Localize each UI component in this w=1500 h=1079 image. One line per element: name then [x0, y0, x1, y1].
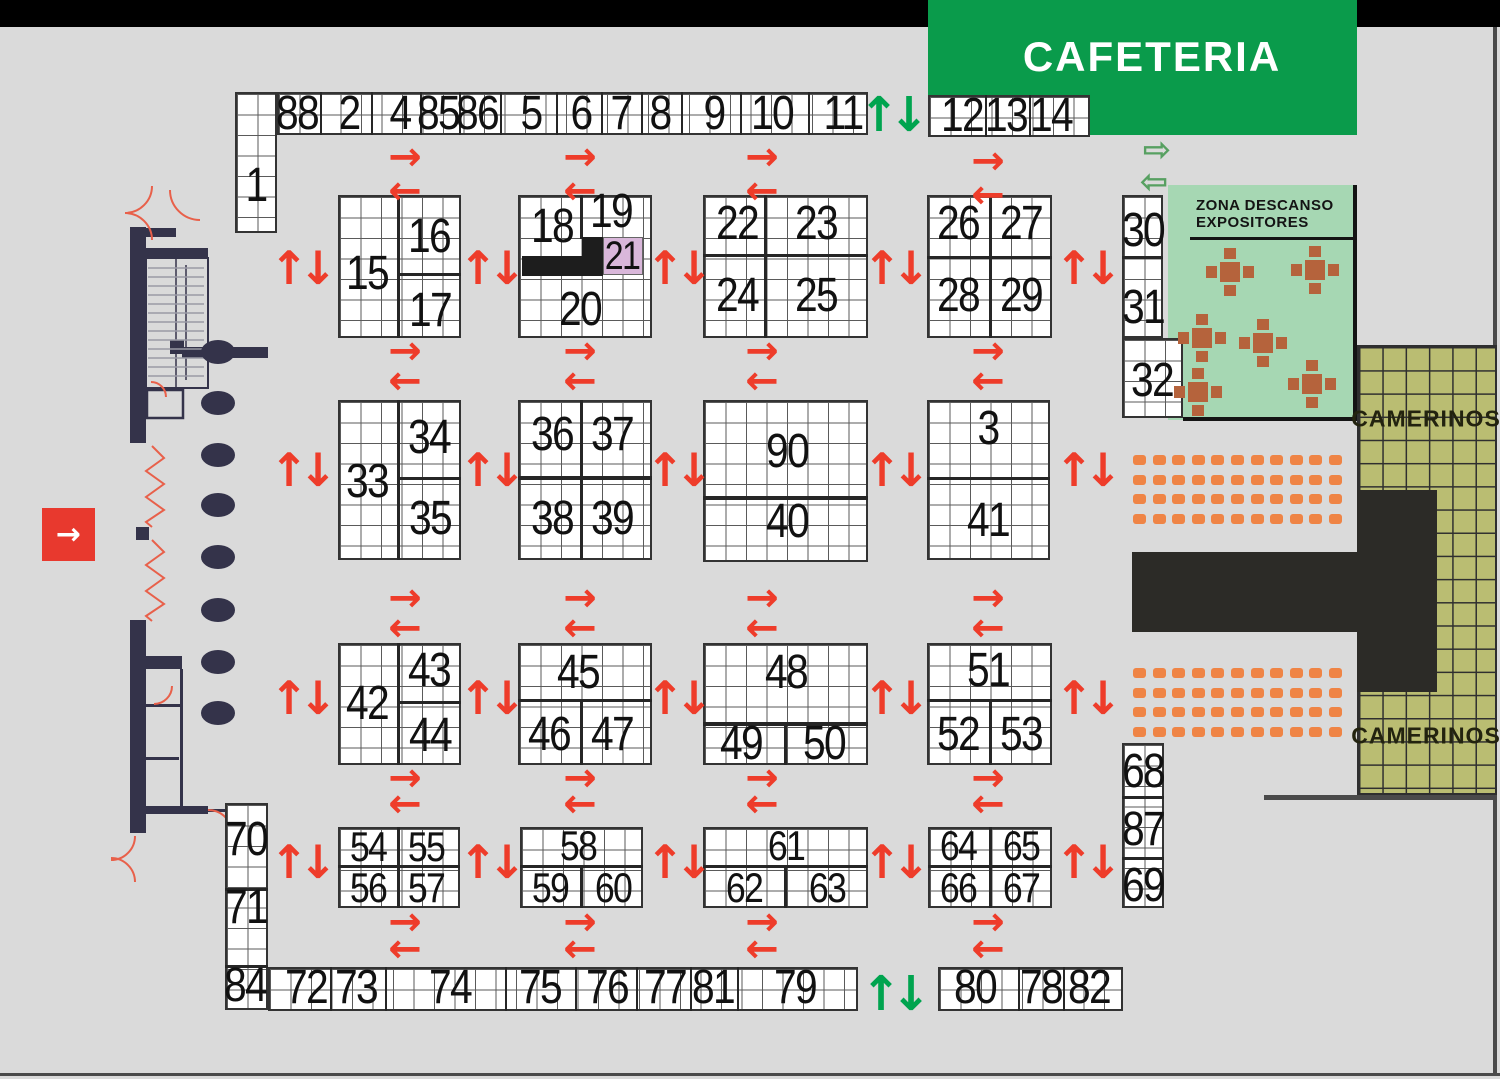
seat-dot [1211, 514, 1224, 524]
booth-28[interactable]: 28 [937, 272, 979, 320]
booth-45[interactable]: 45 [557, 649, 599, 697]
seat-dot [1290, 727, 1303, 737]
red-down-arrow-icon: ↓ [299, 675, 338, 721]
seat-dot [1172, 727, 1185, 737]
booth-84[interactable]: 84 [224, 962, 266, 1010]
booth-15[interactable]: 15 [346, 250, 388, 298]
booth-divider [397, 477, 461, 480]
green-down-arrow-icon: ↓ [891, 970, 931, 1018]
seat-dot [1309, 707, 1322, 717]
booth-divider [371, 92, 373, 135]
column-oval [201, 650, 235, 674]
seat-dot [1192, 707, 1205, 717]
seat-dot [1133, 668, 1146, 678]
booth-86[interactable]: 86 [456, 90, 498, 138]
booth-divider [397, 195, 400, 338]
seat-dot [1251, 688, 1264, 698]
booth-divider [556, 92, 558, 135]
camerinos-label-top: CAMERINOS [1351, 406, 1500, 433]
booth-24[interactable]: 24 [716, 272, 758, 320]
seat-dot [1211, 707, 1224, 717]
booth-75[interactable]: 75 [519, 964, 561, 1012]
seat-dot [1329, 727, 1342, 737]
red-left-arrow-icon: ← [388, 361, 422, 401]
seat-dot [1329, 668, 1342, 678]
red-left-arrow-icon: ← [745, 784, 779, 824]
booth-68[interactable]: 68 [1122, 748, 1164, 796]
seat-dot [1172, 688, 1185, 698]
seat-dot [1133, 475, 1146, 485]
booth-47[interactable]: 47 [591, 711, 633, 759]
booth-9[interactable]: 9 [704, 90, 725, 138]
seat-dot [1133, 514, 1146, 524]
booth-divider [397, 400, 400, 560]
green-down-arrow-icon: ↓ [889, 91, 929, 139]
seat-dot [1231, 494, 1244, 504]
booth-43[interactable]: 43 [408, 647, 450, 695]
table-icon [1178, 314, 1226, 362]
seat-dot [1251, 727, 1264, 737]
red-down-arrow-icon: ↓ [299, 447, 338, 493]
seat-dot [1329, 455, 1342, 465]
booth-41[interactable]: 41 [967, 497, 1009, 545]
red-down-arrow-icon: ↓ [892, 675, 931, 721]
column-oval [201, 493, 235, 517]
seat-dot [1309, 494, 1322, 504]
booth-37[interactable]: 37 [591, 411, 633, 459]
seat-dot [1290, 668, 1303, 678]
seat-dot [1211, 727, 1224, 737]
booth-52[interactable]: 52 [937, 711, 979, 759]
booth-65[interactable]: 65 [1003, 825, 1039, 867]
table-icon [1288, 360, 1336, 408]
booth-divider [397, 273, 461, 276]
seat-dot [1211, 455, 1224, 465]
booth-divider [808, 92, 810, 135]
seat-dot [1270, 707, 1283, 717]
booth-3[interactable]: 3 [978, 405, 999, 453]
seat-dot [1309, 688, 1322, 698]
booth-divider [518, 476, 652, 480]
booth-71[interactable]: 71 [225, 884, 267, 932]
door-arc-icon [111, 186, 232, 882]
seat-dot [1290, 494, 1303, 504]
seat-dot [1172, 514, 1185, 524]
seat-dot [1329, 494, 1342, 504]
booth-67[interactable]: 67 [1003, 867, 1039, 909]
column-oval [201, 701, 235, 725]
booth-87[interactable]: 87 [1122, 806, 1164, 854]
booth-35[interactable]: 35 [409, 495, 451, 543]
seat-dot [1153, 494, 1166, 504]
seat-dot [1211, 494, 1224, 504]
booth-63[interactable]: 63 [809, 867, 845, 909]
booth-42[interactable]: 42 [346, 680, 388, 728]
booth-60[interactable]: 60 [595, 867, 631, 909]
rest-zone-underline [1190, 237, 1357, 240]
booth-79[interactable]: 79 [774, 964, 816, 1012]
seat-dot [1211, 668, 1224, 678]
red-down-arrow-icon: ↓ [675, 839, 714, 885]
booth-78[interactable]: 78 [1020, 964, 1062, 1012]
red-left-arrow-icon: ← [563, 361, 597, 401]
booth-divider [1063, 967, 1065, 1011]
booth-85[interactable]: 85 [417, 90, 459, 138]
seat-dot [1133, 727, 1146, 737]
seat-dot [1153, 455, 1166, 465]
seat-dot [1329, 688, 1342, 698]
red-left-arrow-icon: ← [745, 171, 779, 211]
seat-dot [1251, 514, 1264, 524]
seat-dot [1270, 494, 1283, 504]
red-left-arrow-icon: ← [563, 171, 597, 211]
seat-dot [1153, 475, 1166, 485]
red-left-arrow-icon: ← [745, 608, 779, 648]
seat-dot [1270, 668, 1283, 678]
seat-dot [1309, 668, 1322, 678]
red-left-arrow-icon: ← [971, 929, 1005, 969]
seat-dot [1251, 494, 1264, 504]
booth-divider [397, 643, 400, 765]
red-left-arrow-icon: ← [971, 175, 1005, 215]
booth-21[interactable]: 21 [605, 236, 639, 276]
booth-44[interactable]: 44 [409, 712, 451, 760]
booth-divider [601, 92, 603, 135]
booth-23[interactable]: 23 [795, 200, 837, 248]
booth-64[interactable]: 64 [940, 825, 976, 867]
booth-31[interactable]: 31 [1122, 284, 1164, 332]
red-down-arrow-icon: ↓ [1084, 447, 1123, 493]
red-left-arrow-icon: ← [563, 608, 597, 648]
booth-divider [784, 865, 787, 908]
left-architecture [0, 0, 340, 1079]
booth-33[interactable]: 33 [346, 458, 388, 506]
column-oval [201, 443, 235, 467]
red-down-arrow-icon: ↓ [488, 447, 527, 493]
seat-dot [1270, 455, 1283, 465]
booth-48[interactable]: 48 [765, 649, 807, 697]
rest-zone-label: ZONA DESCANSO EXPOSITORES [1196, 197, 1334, 231]
booth-56[interactable]: 56 [350, 867, 386, 909]
booth-divider [500, 92, 502, 135]
seat-dot [1192, 668, 1205, 678]
seat-dot [1329, 707, 1342, 717]
booth-divider [764, 195, 767, 338]
red-down-arrow-icon: ↓ [675, 675, 714, 721]
table-icon [1206, 248, 1254, 296]
booth-divider [784, 722, 787, 765]
seat-dot [1251, 455, 1264, 465]
seat-dot [1270, 475, 1283, 485]
rest-zone-bottom-line [1183, 417, 1357, 421]
seat-dot [1290, 475, 1303, 485]
rest-zone-line2: EXPOSITORES [1196, 214, 1334, 231]
seat-dot [1192, 494, 1205, 504]
booth-61[interactable]: 61 [768, 825, 804, 867]
seat-dot [1290, 455, 1303, 465]
seat-dot [1153, 668, 1166, 678]
stage-back [1357, 490, 1437, 692]
seat-dot [1309, 455, 1322, 465]
expo-floor-plan: CAFETERIA ZONA DESCANSO EXPOSITORES CAME… [0, 0, 1500, 1079]
column-oval [201, 545, 235, 569]
booth-divider [740, 92, 742, 135]
booth-11[interactable]: 11 [824, 90, 863, 138]
booth-50[interactable]: 50 [803, 720, 845, 768]
table-icon [1291, 246, 1339, 294]
seat-dot [1329, 514, 1342, 524]
red-left-arrow-icon: ← [745, 929, 779, 969]
seat-dot [1251, 668, 1264, 678]
seat-dot [1270, 688, 1283, 698]
seat-dot [1153, 707, 1166, 717]
seat-dot [1133, 455, 1146, 465]
red-down-arrow-icon: ↓ [299, 245, 338, 291]
red-down-arrow-icon: ↓ [488, 675, 527, 721]
red-left-arrow-icon: ← [745, 361, 779, 401]
booth-30[interactable]: 30 [1122, 207, 1164, 255]
red-down-arrow-icon: ↓ [488, 245, 527, 291]
red-left-arrow-icon: ← [388, 171, 422, 211]
column-oval [201, 598, 235, 622]
booth-69[interactable]: 69 [1122, 862, 1164, 910]
seat-dot [1329, 475, 1342, 485]
seat-dot [1133, 494, 1146, 504]
booth-36[interactable]: 36 [531, 411, 573, 459]
seat-dot [1172, 455, 1185, 465]
red-left-arrow-icon: ← [563, 929, 597, 969]
booth-2[interactable]: 2 [339, 90, 360, 138]
seat-dot [1211, 688, 1224, 698]
booth-58[interactable]: 58 [560, 825, 596, 867]
booth-8[interactable]: 8 [650, 90, 671, 138]
column-oval [201, 340, 235, 364]
seat-dot [1192, 514, 1205, 524]
seat-dot [1192, 455, 1205, 465]
red-down-arrow-icon: ↓ [675, 447, 714, 493]
seat-dot [1153, 688, 1166, 698]
booth-34[interactable]: 34 [408, 414, 450, 462]
booth-39[interactable]: 39 [591, 495, 633, 543]
seat-dot [1231, 475, 1244, 485]
red-down-arrow-icon: ↓ [1084, 675, 1123, 721]
seat-dot [1172, 668, 1185, 678]
wall-segments [130, 227, 268, 833]
red-down-arrow-icon: ↓ [1084, 839, 1123, 885]
booth-82[interactable]: 82 [1068, 964, 1110, 1012]
seat-dot [1231, 455, 1244, 465]
booth-81[interactable]: 81 [692, 964, 734, 1012]
booth-88[interactable]: 88 [276, 90, 318, 138]
booth-divider [580, 400, 583, 560]
seat-dot [1309, 514, 1322, 524]
booth-divider [385, 967, 387, 1011]
red-down-arrow-icon: ↓ [892, 839, 931, 885]
booth-32[interactable]: 32 [1131, 357, 1173, 405]
seat-dot [1231, 514, 1244, 524]
seat-dot [1133, 707, 1146, 717]
red-down-arrow-icon: ↓ [299, 839, 338, 885]
booth-divider [518, 699, 652, 702]
red-down-arrow-icon: ↓ [488, 839, 527, 885]
seat-dot [1153, 514, 1166, 524]
booth-7[interactable]: 7 [611, 90, 632, 138]
booth-12[interactable]: 12 [941, 92, 983, 140]
booth-divider [927, 256, 1052, 259]
booth-divider [681, 92, 683, 135]
booth-divider [505, 967, 507, 1011]
booth-73[interactable]: 73 [335, 964, 377, 1012]
seat-dot [1231, 727, 1244, 737]
booth-38[interactable]: 38 [531, 495, 573, 543]
seat-dot [1251, 475, 1264, 485]
cafeteria-label: CAFETERIA [1023, 33, 1281, 81]
red-left-arrow-icon: ← [971, 784, 1005, 824]
seat-dot [1133, 688, 1146, 698]
booth-divider [703, 254, 868, 257]
seat-dot [1251, 707, 1264, 717]
booth-54[interactable]: 54 [350, 826, 386, 868]
booth-46[interactable]: 46 [528, 711, 570, 759]
blocked-cells [522, 256, 603, 276]
booth-51[interactable]: 51 [967, 647, 1009, 695]
booth-14[interactable]: 14 [1030, 92, 1072, 140]
booth-divider [397, 701, 461, 704]
booth-divider [636, 967, 638, 1011]
table-icon [1174, 368, 1222, 416]
booth-divider [641, 92, 643, 135]
booth-72[interactable]: 72 [285, 964, 327, 1012]
stage-area [1132, 552, 1357, 632]
booth-divider [575, 967, 577, 1011]
booth-40[interactable]: 40 [766, 498, 808, 546]
seat-dot [1309, 727, 1322, 737]
seat-dot [1231, 707, 1244, 717]
red-down-arrow-icon: ↓ [675, 245, 714, 291]
booth-4[interactable]: 4 [390, 90, 411, 138]
camerinos-label-bottom: CAMERINOS [1351, 723, 1500, 750]
booth-25[interactable]: 25 [795, 272, 837, 320]
red-down-arrow-icon: ↓ [892, 245, 931, 291]
booth-53[interactable]: 53 [1000, 711, 1042, 759]
seat-dot [1192, 475, 1205, 485]
booth-55[interactable]: 55 [408, 826, 444, 868]
seat-dot [1290, 514, 1303, 524]
booth-divider [737, 967, 739, 1011]
blocked-cells [582, 237, 603, 257]
camerinos-bottom-line [1264, 795, 1497, 800]
booth-90[interactable]: 90 [766, 428, 808, 476]
booth-20[interactable]: 20 [559, 286, 601, 334]
seat-dot [1309, 475, 1322, 485]
seat-dot [1192, 688, 1205, 698]
seat-dot [1290, 688, 1303, 698]
rest-zone-line1: ZONA DESCANSO [1196, 197, 1334, 214]
red-left-arrow-icon: ← [388, 608, 422, 648]
red-down-arrow-icon: ↓ [892, 447, 931, 493]
staircase [146, 258, 208, 388]
booth-13[interactable]: 13 [985, 92, 1027, 140]
seat-dot [1270, 727, 1283, 737]
seat-dot [1153, 727, 1166, 737]
red-left-arrow-icon: ← [388, 784, 422, 824]
seat-dot [1172, 494, 1185, 504]
seat-dot [1211, 475, 1224, 485]
booth-1[interactable]: 1 [246, 162, 267, 210]
booth-27[interactable]: 27 [1000, 200, 1042, 248]
booth-10[interactable]: 10 [751, 90, 793, 138]
table-icon [1239, 319, 1287, 367]
red-left-arrow-icon: ← [971, 361, 1005, 401]
booth-16[interactable]: 16 [408, 213, 450, 261]
pale-left-arrow-icon: ⇦ [1140, 165, 1169, 199]
red-left-arrow-icon: ← [388, 929, 422, 969]
booth-divider [320, 92, 322, 135]
booth-5[interactable]: 5 [521, 90, 542, 138]
booth-74[interactable]: 74 [429, 964, 471, 1012]
booth-70[interactable]: 70 [225, 816, 267, 864]
seat-dot [1231, 668, 1244, 678]
red-left-arrow-icon: ← [563, 784, 597, 824]
booth-29[interactable]: 29 [1000, 272, 1042, 320]
seat-dot [1231, 688, 1244, 698]
seat-dot [1192, 727, 1205, 737]
seat-dot [1172, 475, 1185, 485]
booth-77[interactable]: 77 [644, 964, 686, 1012]
red-down-arrow-icon: ↓ [1084, 245, 1123, 291]
seat-dot [1172, 707, 1185, 717]
red-left-arrow-icon: ← [971, 608, 1005, 648]
booth-6[interactable]: 6 [571, 90, 592, 138]
seat-dot [1270, 514, 1283, 524]
booth-divider [927, 477, 1050, 480]
booth-divider [330, 967, 332, 1011]
seat-dot [1290, 707, 1303, 717]
column-oval [201, 391, 235, 415]
